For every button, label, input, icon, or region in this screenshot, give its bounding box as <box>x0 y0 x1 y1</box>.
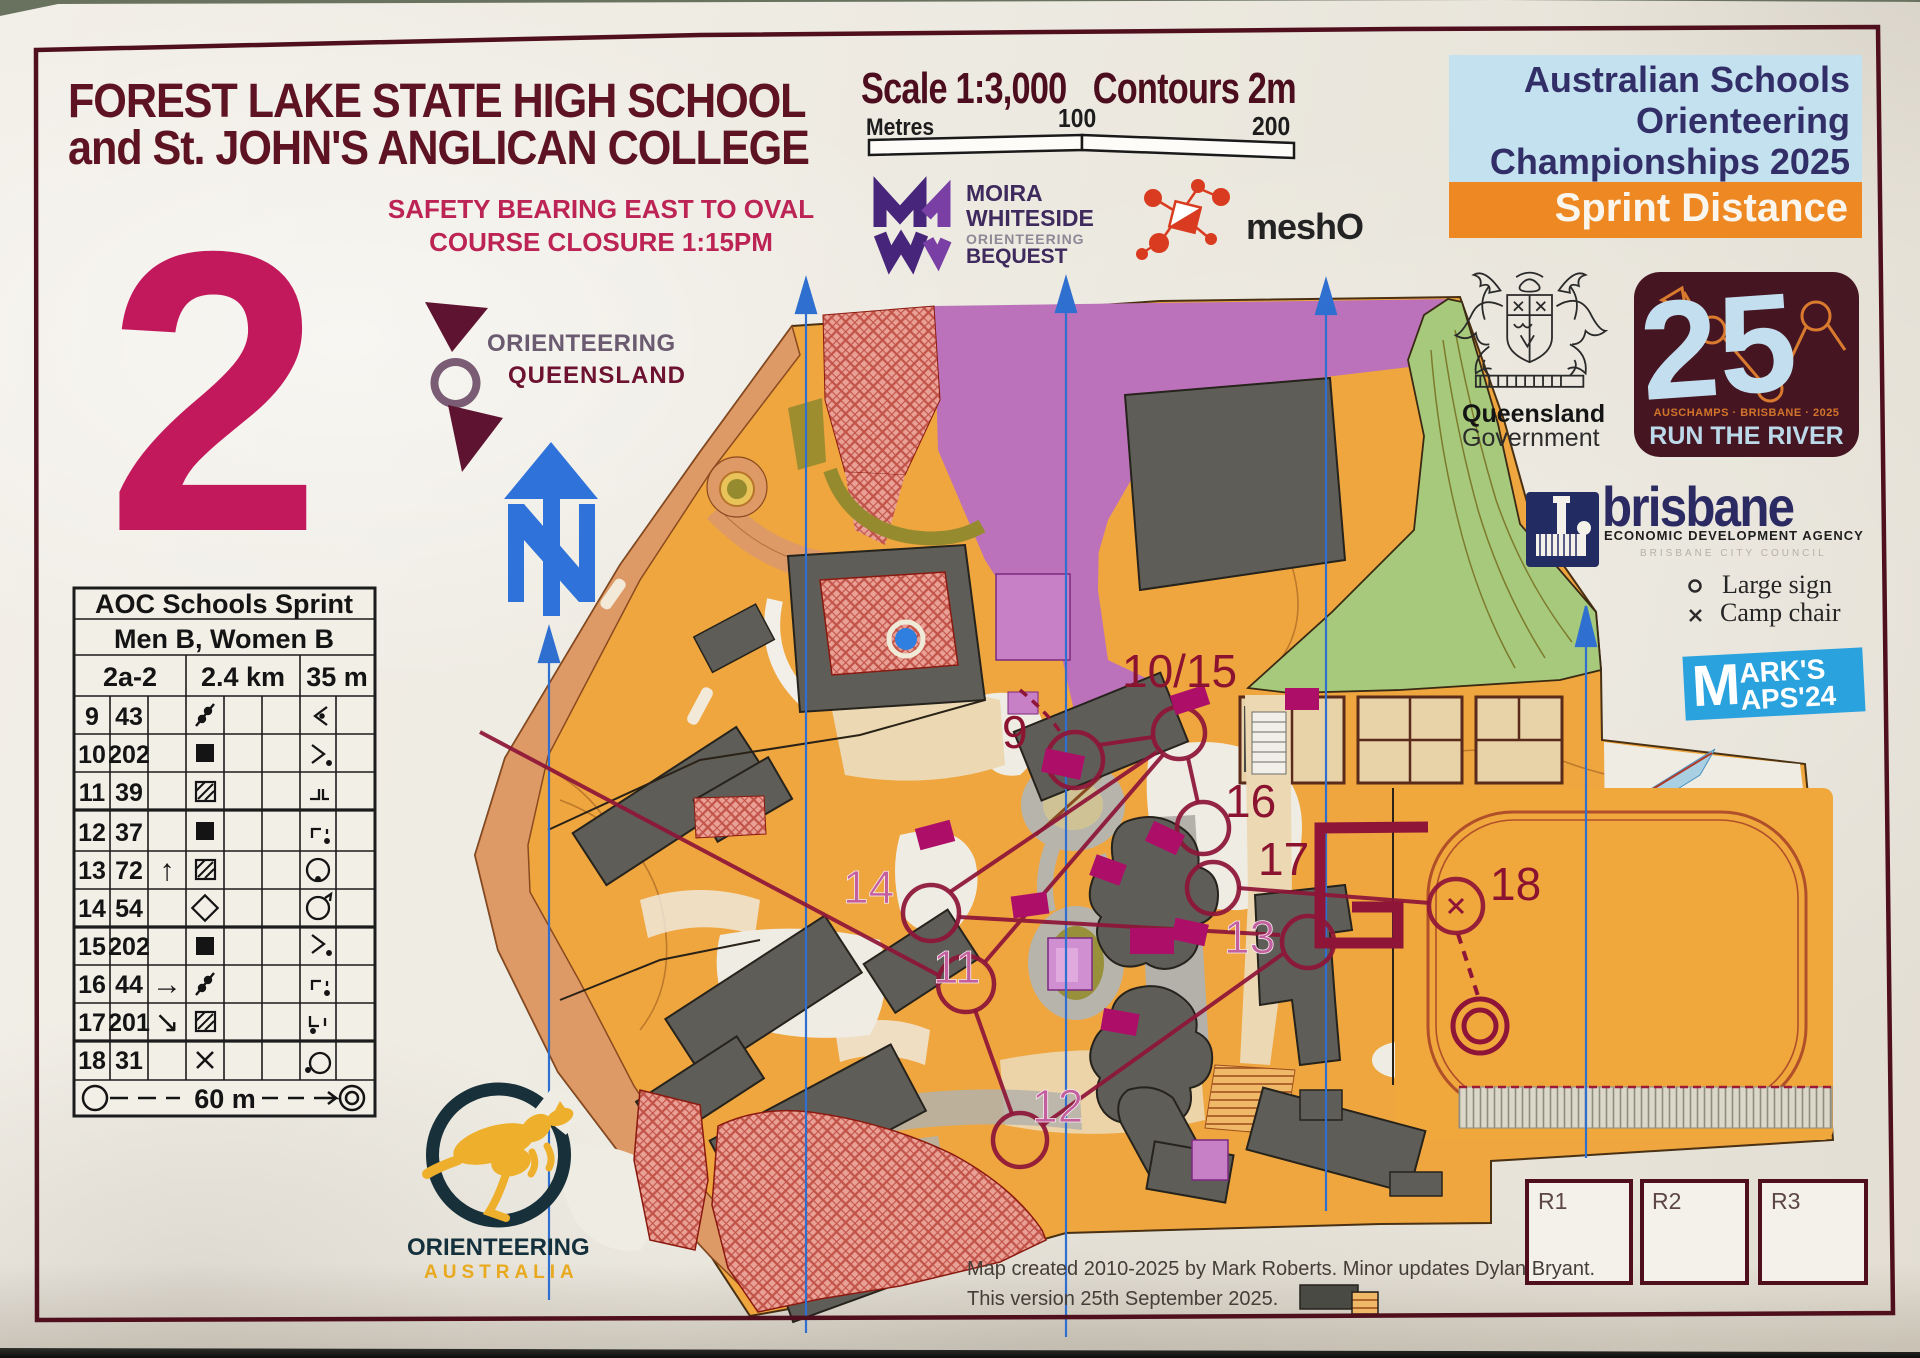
svg-text:54: 54 <box>115 895 143 923</box>
svg-text:202: 202 <box>108 741 150 769</box>
svg-text:11: 11 <box>79 779 106 807</box>
svg-text:16: 16 <box>78 971 106 999</box>
svg-text:10/15: 10/15 <box>1122 645 1237 697</box>
svg-text:2a-2: 2a-2 <box>103 662 157 692</box>
svg-text:Men B, Women B: Men B, Women B <box>114 624 334 654</box>
svg-text:17: 17 <box>78 1009 106 1037</box>
svg-text:35 m: 35 m <box>306 662 368 692</box>
svg-text:14: 14 <box>843 861 894 913</box>
svg-text:18: 18 <box>78 1047 106 1075</box>
svg-text:↘: ↘ <box>154 1006 179 1039</box>
svg-text:16: 16 <box>1225 775 1276 827</box>
svg-text:18: 18 <box>1490 858 1541 910</box>
svg-text:15: 15 <box>78 933 106 961</box>
svg-text:11: 11 <box>933 941 981 993</box>
svg-text:12: 12 <box>78 819 106 847</box>
svg-text:→: → <box>152 968 182 1001</box>
svg-text:201: 201 <box>108 1009 150 1037</box>
svg-text:↑: ↑ <box>160 854 175 887</box>
svg-text:37: 37 <box>115 819 143 847</box>
svg-text:13: 13 <box>78 857 106 885</box>
svg-text:202: 202 <box>108 933 150 961</box>
svg-text:43: 43 <box>115 703 143 731</box>
svg-text:9: 9 <box>85 703 99 731</box>
svg-text:12: 12 <box>1032 1080 1083 1132</box>
svg-text:31: 31 <box>115 1047 143 1075</box>
svg-text:17: 17 <box>1258 833 1309 885</box>
svg-text:2.4 km: 2.4 km <box>201 662 285 692</box>
svg-text:72: 72 <box>115 857 143 885</box>
svg-text:44: 44 <box>115 971 143 999</box>
svg-text:13: 13 <box>1224 911 1275 963</box>
svg-text:25: 25 <box>1635 262 1801 429</box>
svg-text:60 m: 60 m <box>194 1084 256 1114</box>
svg-text:9: 9 <box>1002 706 1028 758</box>
svg-text:39: 39 <box>115 779 143 807</box>
svg-text:10: 10 <box>78 741 106 769</box>
svg-text:14: 14 <box>78 895 106 923</box>
